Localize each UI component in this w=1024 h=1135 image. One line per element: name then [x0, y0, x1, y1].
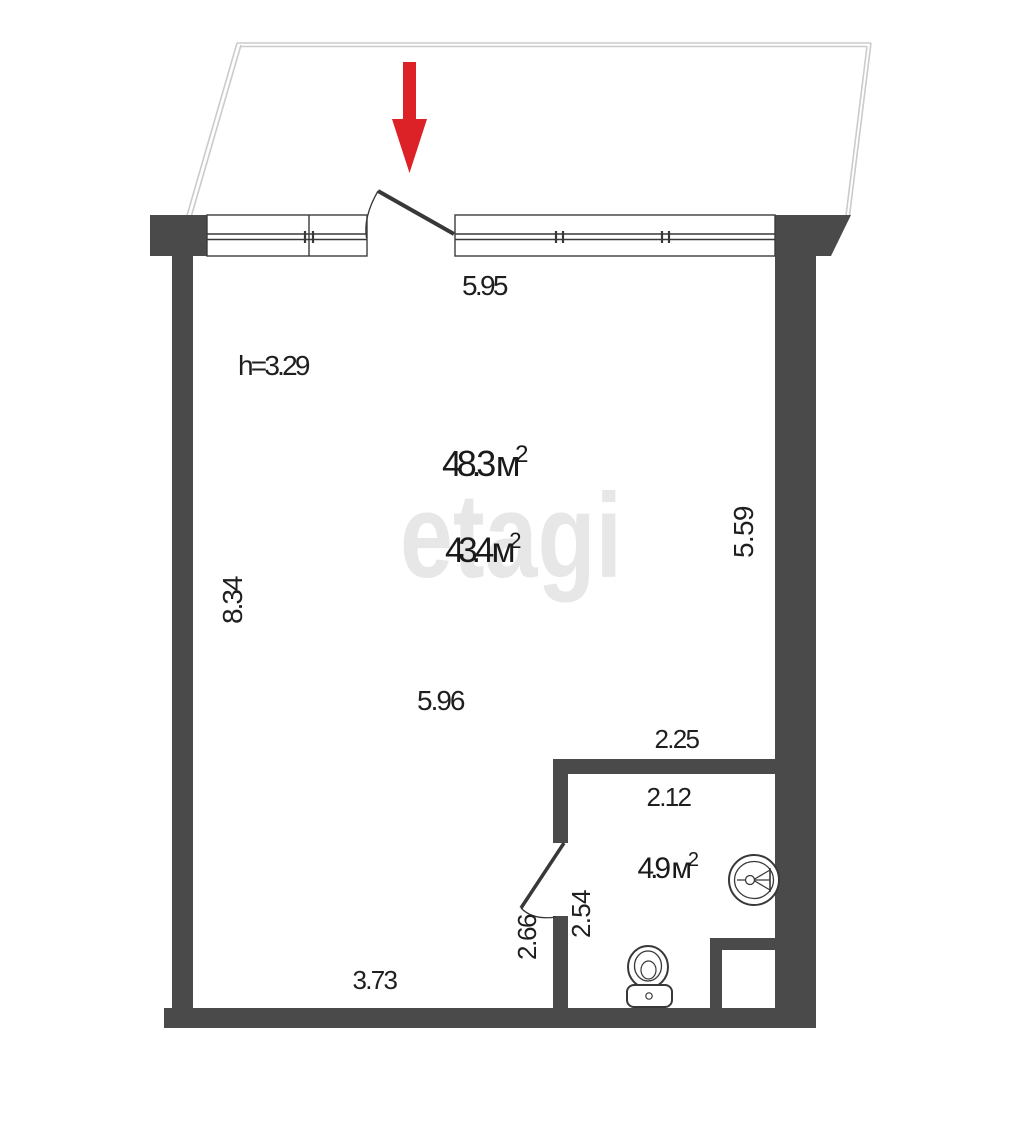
- dim-entry-opening-width: 5.95: [462, 270, 508, 301]
- window-left: [207, 215, 367, 256]
- dim-bathroom-door-wall: 2.66: [512, 914, 542, 960]
- wall-right: [775, 215, 816, 1028]
- label-total-area: 48.3 м2: [442, 441, 528, 484]
- balcony-line: [187, 43, 237, 216]
- window-right: [455, 215, 775, 256]
- entrance-door: [366, 191, 454, 238]
- sink-icon: [729, 855, 779, 905]
- arrow-shaft: [403, 62, 416, 119]
- toilet-bowl-center: [641, 961, 656, 979]
- floor-plan: etagi: [0, 0, 1024, 1135]
- bathroom-wall-left-upper: [553, 759, 568, 843]
- dim-bottom-wall-length: 3.73: [353, 965, 398, 995]
- door-leaf: [378, 191, 454, 234]
- floor-plan-canvas: etagi: [0, 0, 1024, 1135]
- wall-bottom: [164, 1008, 816, 1028]
- dim-ceiling-height: h=3.29: [238, 350, 310, 381]
- bathroom-door: [521, 843, 564, 918]
- balcony-line: [850, 43, 872, 216]
- dim-bathroom-outer-width: 2.25: [655, 724, 700, 754]
- bathroom-wall-top: [553, 759, 775, 774]
- entrance-arrow-icon: [392, 62, 427, 173]
- window-frame: [455, 215, 775, 256]
- label-room-area: 43.4 м2: [445, 528, 521, 570]
- door-leaf: [521, 843, 564, 908]
- window-frame: [207, 215, 367, 256]
- dim-left-wall-length: 8.34: [217, 576, 248, 624]
- balcony-outline: [187, 43, 871, 216]
- dim-right-wall-length: 5.59: [728, 506, 759, 558]
- walls: [150, 215, 851, 1028]
- arrow-head: [392, 119, 427, 173]
- toilet-button: [646, 993, 652, 999]
- balcony-line: [192, 45, 242, 216]
- dim-room-width: 5.96: [417, 685, 465, 716]
- dim-bathroom-inner-width: 2.12: [647, 782, 692, 812]
- dim-bathroom-inner-depth: 2.54: [566, 890, 596, 938]
- toilet-icon: [627, 946, 672, 1007]
- balcony-line: [846, 47, 867, 216]
- wall-left: [172, 215, 193, 1008]
- duct-wall-left: [710, 938, 722, 1008]
- label-bathroom-area: 4.9 м2: [637, 849, 698, 885]
- sink-drain: [746, 876, 755, 885]
